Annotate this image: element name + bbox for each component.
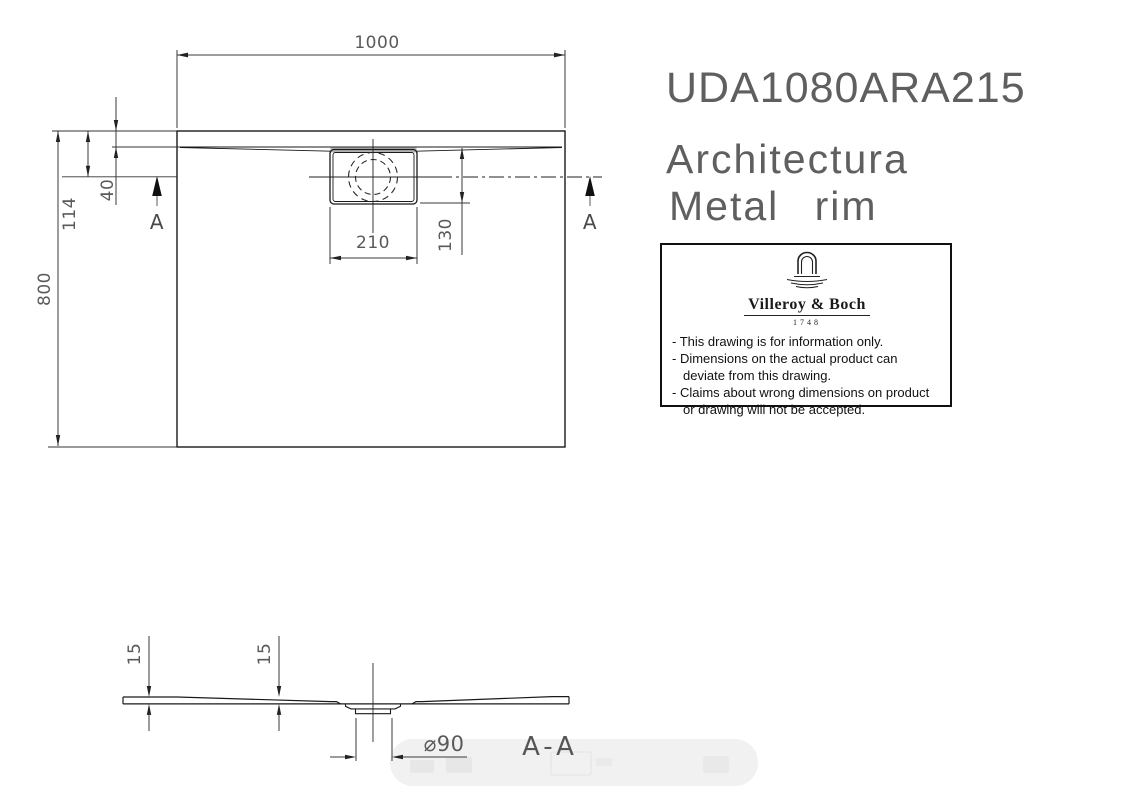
dim-15-right xyxy=(277,636,281,731)
dim-15-left xyxy=(147,636,151,731)
section-cut-marker-right xyxy=(585,176,595,206)
dim-label-15-right: 15 xyxy=(255,643,275,666)
dim-label-15-left: 15 xyxy=(125,643,145,666)
dim-label-40: 40 xyxy=(98,179,118,202)
section-marker-label-left: A xyxy=(150,210,164,234)
dim-114 xyxy=(86,131,90,177)
technical-drawing-page: 1000 800 114 40 130 210 A A 15 15 ⌀90 A-… xyxy=(0,0,1138,804)
disclaimer-note: - Dimensions on the actual product can d… xyxy=(672,350,942,384)
dim-1000 xyxy=(177,50,565,128)
section-marker-label-right: A xyxy=(583,210,597,234)
dim-label-210: 210 xyxy=(356,233,390,253)
dim-label-130: 130 xyxy=(436,218,456,252)
section-cut-marker-left xyxy=(152,176,162,206)
product-series: Architectura xyxy=(666,136,909,183)
dim-800 xyxy=(56,131,60,446)
plan-view xyxy=(48,50,602,447)
drawing-canvas xyxy=(0,0,1138,804)
product-variant: Metal rim xyxy=(669,183,878,230)
dim-label-114: 114 xyxy=(60,197,80,231)
dim-label-800: 800 xyxy=(35,272,55,306)
disclaimer-note: - Claims about wrong dimensions on produ… xyxy=(672,384,942,418)
dim-label-drain-diameter: ⌀90 xyxy=(424,732,465,756)
disclaimer-note: - This drawing is for information only. xyxy=(672,333,942,350)
faucet-logo-icon xyxy=(747,251,867,291)
brand-name: Villeroy & Boch xyxy=(744,296,870,316)
disclaimer-notes: - This drawing is for information only. … xyxy=(672,333,942,418)
manufacturer-info-box: Villeroy & Boch 1748 - This drawing is f… xyxy=(660,243,952,407)
villeroy-boch-logo: Villeroy & Boch 1748 xyxy=(672,251,942,327)
section-view-label: A-A xyxy=(522,732,578,762)
product-code: UDA1080ARA215 xyxy=(666,64,1026,113)
brand-year: 1748 xyxy=(672,318,942,327)
dim-label-1000: 1000 xyxy=(354,33,399,53)
